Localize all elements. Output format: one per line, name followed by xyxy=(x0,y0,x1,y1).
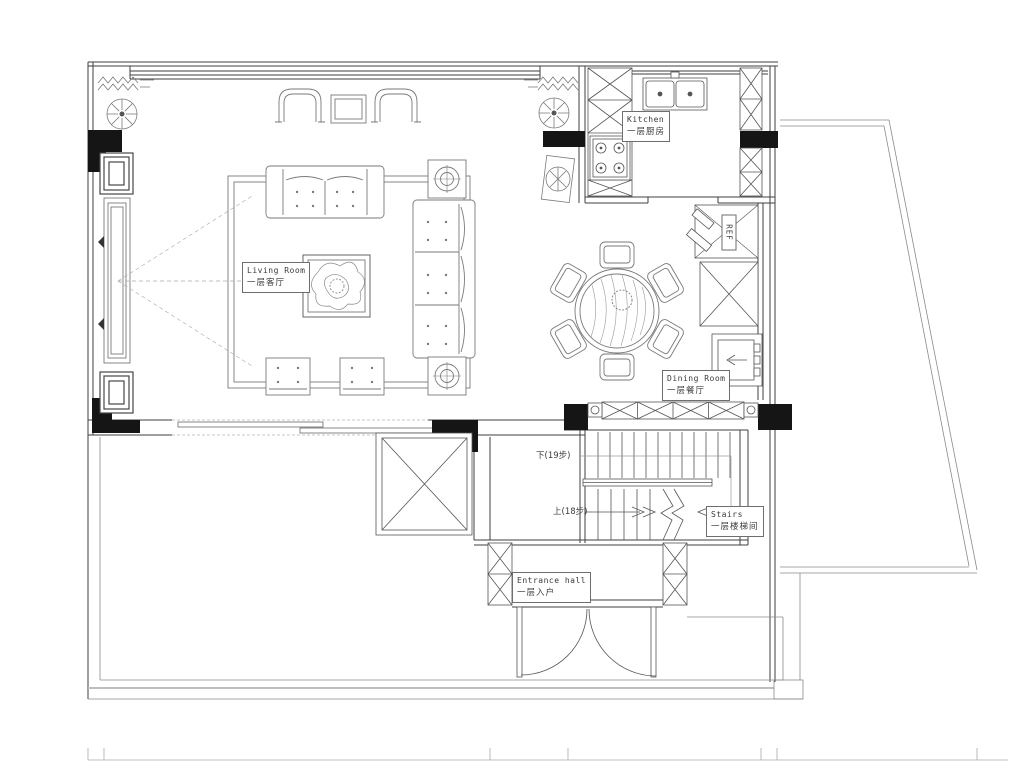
kitchen-label-en: Kitchen xyxy=(627,114,665,126)
dining-room-label-zh: 一层餐厅 xyxy=(667,385,725,398)
stairs-label-zh: 一层楼梯间 xyxy=(711,521,759,534)
terrace-boundary xyxy=(88,120,977,699)
stairs-label-en: Stairs xyxy=(711,509,759,521)
living-furniture xyxy=(228,89,475,395)
scale-ticks xyxy=(88,748,1008,760)
living-room-label: Living Room 一层客厅 xyxy=(242,262,310,293)
floor-plan-linework xyxy=(0,0,1024,768)
stairs-down-steps-annotation: 下(19步) xyxy=(536,449,570,461)
dining-table xyxy=(549,242,686,380)
refrigerator-label: REF xyxy=(722,215,737,251)
entrance-hall-label-en: Entrance hall xyxy=(517,575,586,587)
living-room-label-zh: 一层客厅 xyxy=(247,277,305,290)
floor-plan-canvas: Living Room 一层客厅 Kitchen 一层厨房 Dining Roo… xyxy=(0,0,1024,768)
entrance-door xyxy=(488,543,687,677)
wall-speakers xyxy=(100,153,133,413)
dining-cabinet-row xyxy=(588,402,758,419)
kitchen-label: Kitchen 一层厨房 xyxy=(622,111,670,142)
stairs-label: Stairs 一层楼梯间 xyxy=(706,506,764,537)
entrance-hall-label-zh: 一层入户 xyxy=(517,587,586,600)
dining-room-label-en: Dining Room xyxy=(667,373,725,385)
kitchen-fixtures xyxy=(588,68,762,196)
stairs-up-steps-annotation: 上(18步) xyxy=(553,505,587,517)
kitchen-label-zh: 一层厨房 xyxy=(627,126,665,139)
entrance-hall-label: Entrance hall 一层入户 xyxy=(512,572,591,603)
living-room-label-en: Living Room xyxy=(247,265,305,277)
dining-room-label: Dining Room 一层餐厅 xyxy=(662,370,730,401)
shaft-x-box xyxy=(376,433,472,535)
